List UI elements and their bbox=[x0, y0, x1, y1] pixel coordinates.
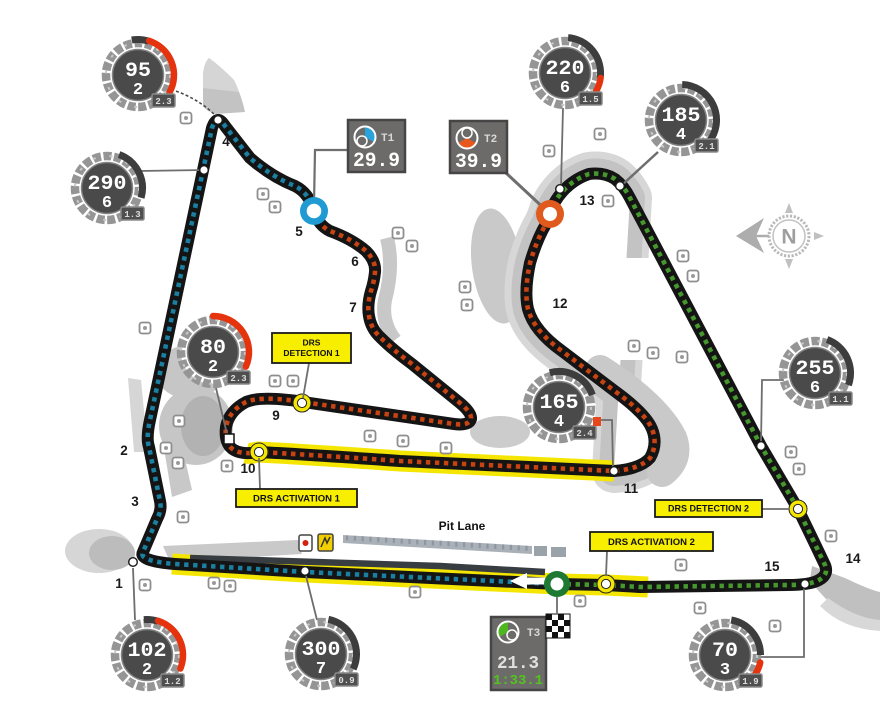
svg-text:29.9: 29.9 bbox=[353, 150, 400, 173]
svg-text:2.1: 2.1 bbox=[698, 142, 715, 152]
svg-text:300: 300 bbox=[302, 639, 341, 662]
svg-text:3: 3 bbox=[720, 661, 730, 680]
svg-text:1.3: 1.3 bbox=[124, 210, 140, 220]
svg-text:2: 2 bbox=[133, 81, 143, 100]
svg-text:DRS DETECTION 2: DRS DETECTION 2 bbox=[668, 504, 749, 514]
svg-text:3: 3 bbox=[131, 494, 139, 509]
svg-text:DRS ACTIVATION 1: DRS ACTIVATION 1 bbox=[253, 493, 341, 504]
svg-text:80: 80 bbox=[200, 337, 226, 360]
svg-text:11: 11 bbox=[624, 481, 639, 496]
svg-text:255: 255 bbox=[796, 358, 835, 381]
svg-text:21.3: 21.3 bbox=[497, 654, 539, 674]
svg-text:7: 7 bbox=[316, 660, 326, 679]
svg-text:39.9: 39.9 bbox=[455, 151, 502, 174]
svg-text:5: 5 bbox=[295, 224, 303, 239]
svg-text:1: 1 bbox=[115, 576, 123, 591]
svg-text:2: 2 bbox=[120, 443, 128, 458]
svg-text:6: 6 bbox=[351, 254, 359, 269]
svg-text:4: 4 bbox=[554, 413, 564, 432]
svg-text:15: 15 bbox=[764, 559, 780, 574]
svg-text:1.1: 1.1 bbox=[832, 395, 849, 405]
svg-text:T2: T2 bbox=[484, 134, 497, 146]
svg-text:102: 102 bbox=[128, 640, 167, 663]
svg-text:185: 185 bbox=[662, 105, 701, 128]
svg-text:2.3: 2.3 bbox=[155, 97, 171, 107]
svg-text:DRS ACTIVATION 2: DRS ACTIVATION 2 bbox=[608, 537, 695, 548]
svg-text:13: 13 bbox=[579, 193, 595, 208]
svg-text:DETECTION 1: DETECTION 1 bbox=[283, 348, 339, 358]
svg-text:290: 290 bbox=[88, 173, 127, 196]
svg-text:95: 95 bbox=[125, 60, 151, 83]
svg-text:10: 10 bbox=[240, 461, 255, 476]
svg-text:4: 4 bbox=[676, 126, 686, 145]
svg-text:Pit Lane: Pit Lane bbox=[439, 519, 486, 533]
svg-text:165: 165 bbox=[540, 392, 579, 415]
svg-text:6: 6 bbox=[560, 79, 570, 98]
svg-text:12: 12 bbox=[552, 296, 567, 311]
svg-text:1.5: 1.5 bbox=[582, 95, 598, 105]
svg-text:T1: T1 bbox=[381, 133, 395, 145]
svg-text:14: 14 bbox=[845, 551, 861, 566]
svg-text:7: 7 bbox=[349, 300, 357, 315]
svg-text:220: 220 bbox=[546, 58, 585, 81]
svg-text:6: 6 bbox=[102, 194, 112, 213]
svg-text:6: 6 bbox=[810, 379, 820, 398]
svg-text:4: 4 bbox=[222, 134, 230, 149]
svg-text:70: 70 bbox=[712, 640, 738, 663]
svg-text:1.2: 1.2 bbox=[164, 677, 180, 687]
svg-text:T3: T3 bbox=[527, 628, 541, 640]
svg-text:N: N bbox=[781, 226, 796, 249]
svg-text:2: 2 bbox=[208, 358, 218, 377]
svg-text:DRS: DRS bbox=[303, 338, 321, 348]
svg-text:1:33.1: 1:33.1 bbox=[493, 673, 543, 689]
svg-text:0.9: 0.9 bbox=[338, 676, 354, 686]
svg-text:2: 2 bbox=[142, 661, 152, 680]
svg-text:2.3: 2.3 bbox=[230, 374, 246, 384]
svg-text:9: 9 bbox=[272, 408, 280, 423]
svg-text:2.4: 2.4 bbox=[576, 429, 593, 439]
svg-text:1.9: 1.9 bbox=[742, 677, 758, 687]
